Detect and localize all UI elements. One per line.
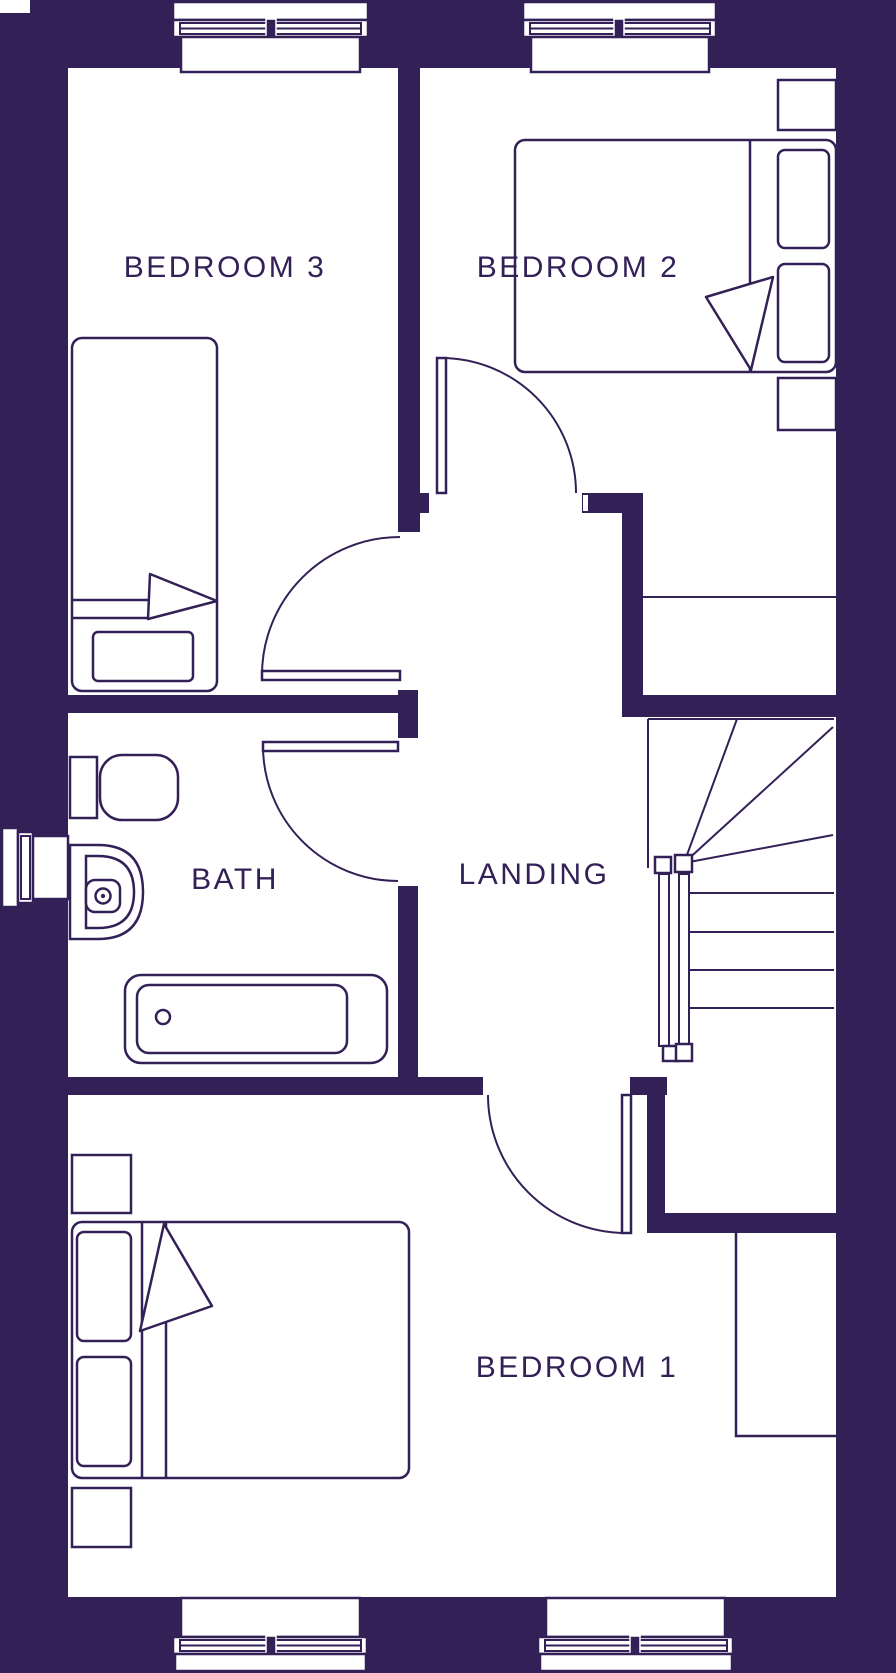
wall-bed2-door-stub xyxy=(582,493,643,513)
window-recess xyxy=(546,1598,725,1637)
pillow xyxy=(77,1357,131,1466)
wall-bath-stub-upper xyxy=(398,690,418,738)
jamb-bedroom2 xyxy=(583,495,588,511)
window-mullion xyxy=(266,19,276,38)
bedroom3-furniture xyxy=(72,338,217,691)
jamb-bath-lower xyxy=(399,882,417,886)
window-recess xyxy=(181,1598,360,1637)
door-leaf xyxy=(263,742,398,751)
window-sill xyxy=(173,2,368,20)
wall-above-stairs xyxy=(643,695,837,717)
window-bedroom1-bottom-right xyxy=(538,1598,733,1671)
window-bedroom3-top xyxy=(173,2,368,72)
window-mullion xyxy=(614,19,624,38)
stair-newel-post xyxy=(675,855,692,872)
toilet-cistern xyxy=(70,757,97,818)
pillow xyxy=(93,632,193,681)
toilet-bowl xyxy=(100,755,178,820)
room-label-bedroom2: BEDROOM 2 xyxy=(477,251,680,284)
wall-bed3-south xyxy=(0,695,398,713)
stair-newel-post xyxy=(655,857,671,873)
room-label-bedroom3: BEDROOM 3 xyxy=(124,251,327,284)
pillow xyxy=(77,1232,131,1341)
wall-bed3-bed2-divider xyxy=(398,60,420,532)
window-bedroom2-top xyxy=(523,2,716,72)
room-label-bath: BATH xyxy=(191,863,279,896)
bedside-table xyxy=(778,80,836,130)
jamb-bath-upper xyxy=(399,738,417,742)
wall-bath-south xyxy=(0,1077,483,1095)
wall-top xyxy=(30,0,896,68)
window-sill xyxy=(540,1654,732,1671)
window-bath-left xyxy=(2,828,68,907)
door-leaf xyxy=(437,358,446,493)
window-bedroom1-bottom-left xyxy=(173,1598,367,1671)
wall-bed1-door-stub xyxy=(630,1077,667,1095)
wall-notch xyxy=(420,493,429,513)
window-sill xyxy=(175,1654,366,1671)
bedside-table xyxy=(72,1488,131,1547)
window-mullion xyxy=(266,1636,276,1655)
room-label-bedroom1: BEDROOM 1 xyxy=(476,1351,679,1384)
door-leaf xyxy=(622,1095,631,1233)
room-label-landing: LANDING xyxy=(459,858,610,891)
bedside-table xyxy=(778,378,836,430)
basin-tap-dot xyxy=(101,894,105,898)
wall-bath-divider-lower xyxy=(398,886,418,1095)
wall-right xyxy=(836,0,896,1673)
wall-stair-west xyxy=(647,1095,665,1233)
bedside-table xyxy=(72,1155,131,1213)
window-sill xyxy=(523,2,716,20)
pillow xyxy=(778,150,829,248)
wall-landing-closet-divider xyxy=(622,513,643,717)
window-recess xyxy=(531,37,709,72)
wall-bed1-northeast xyxy=(647,1213,837,1233)
stair-newel-post xyxy=(676,1044,692,1061)
window-recess xyxy=(181,37,360,72)
window-recess xyxy=(33,836,68,899)
pillow xyxy=(778,264,829,362)
floor-plan-page: BEDROOM 3 BEDROOM 2 BATH LANDING BEDROOM… xyxy=(0,0,896,1673)
floor-plan: BEDROOM 3 BEDROOM 2 BATH LANDING BEDROOM… xyxy=(0,0,896,1673)
wall-bottom xyxy=(30,1597,896,1673)
door-leaf xyxy=(262,671,400,680)
jamb-bedroom3 xyxy=(399,532,417,537)
jamb-bedroom1 xyxy=(483,1078,489,1094)
window-sill xyxy=(2,828,18,907)
window-mullion xyxy=(630,1636,640,1655)
